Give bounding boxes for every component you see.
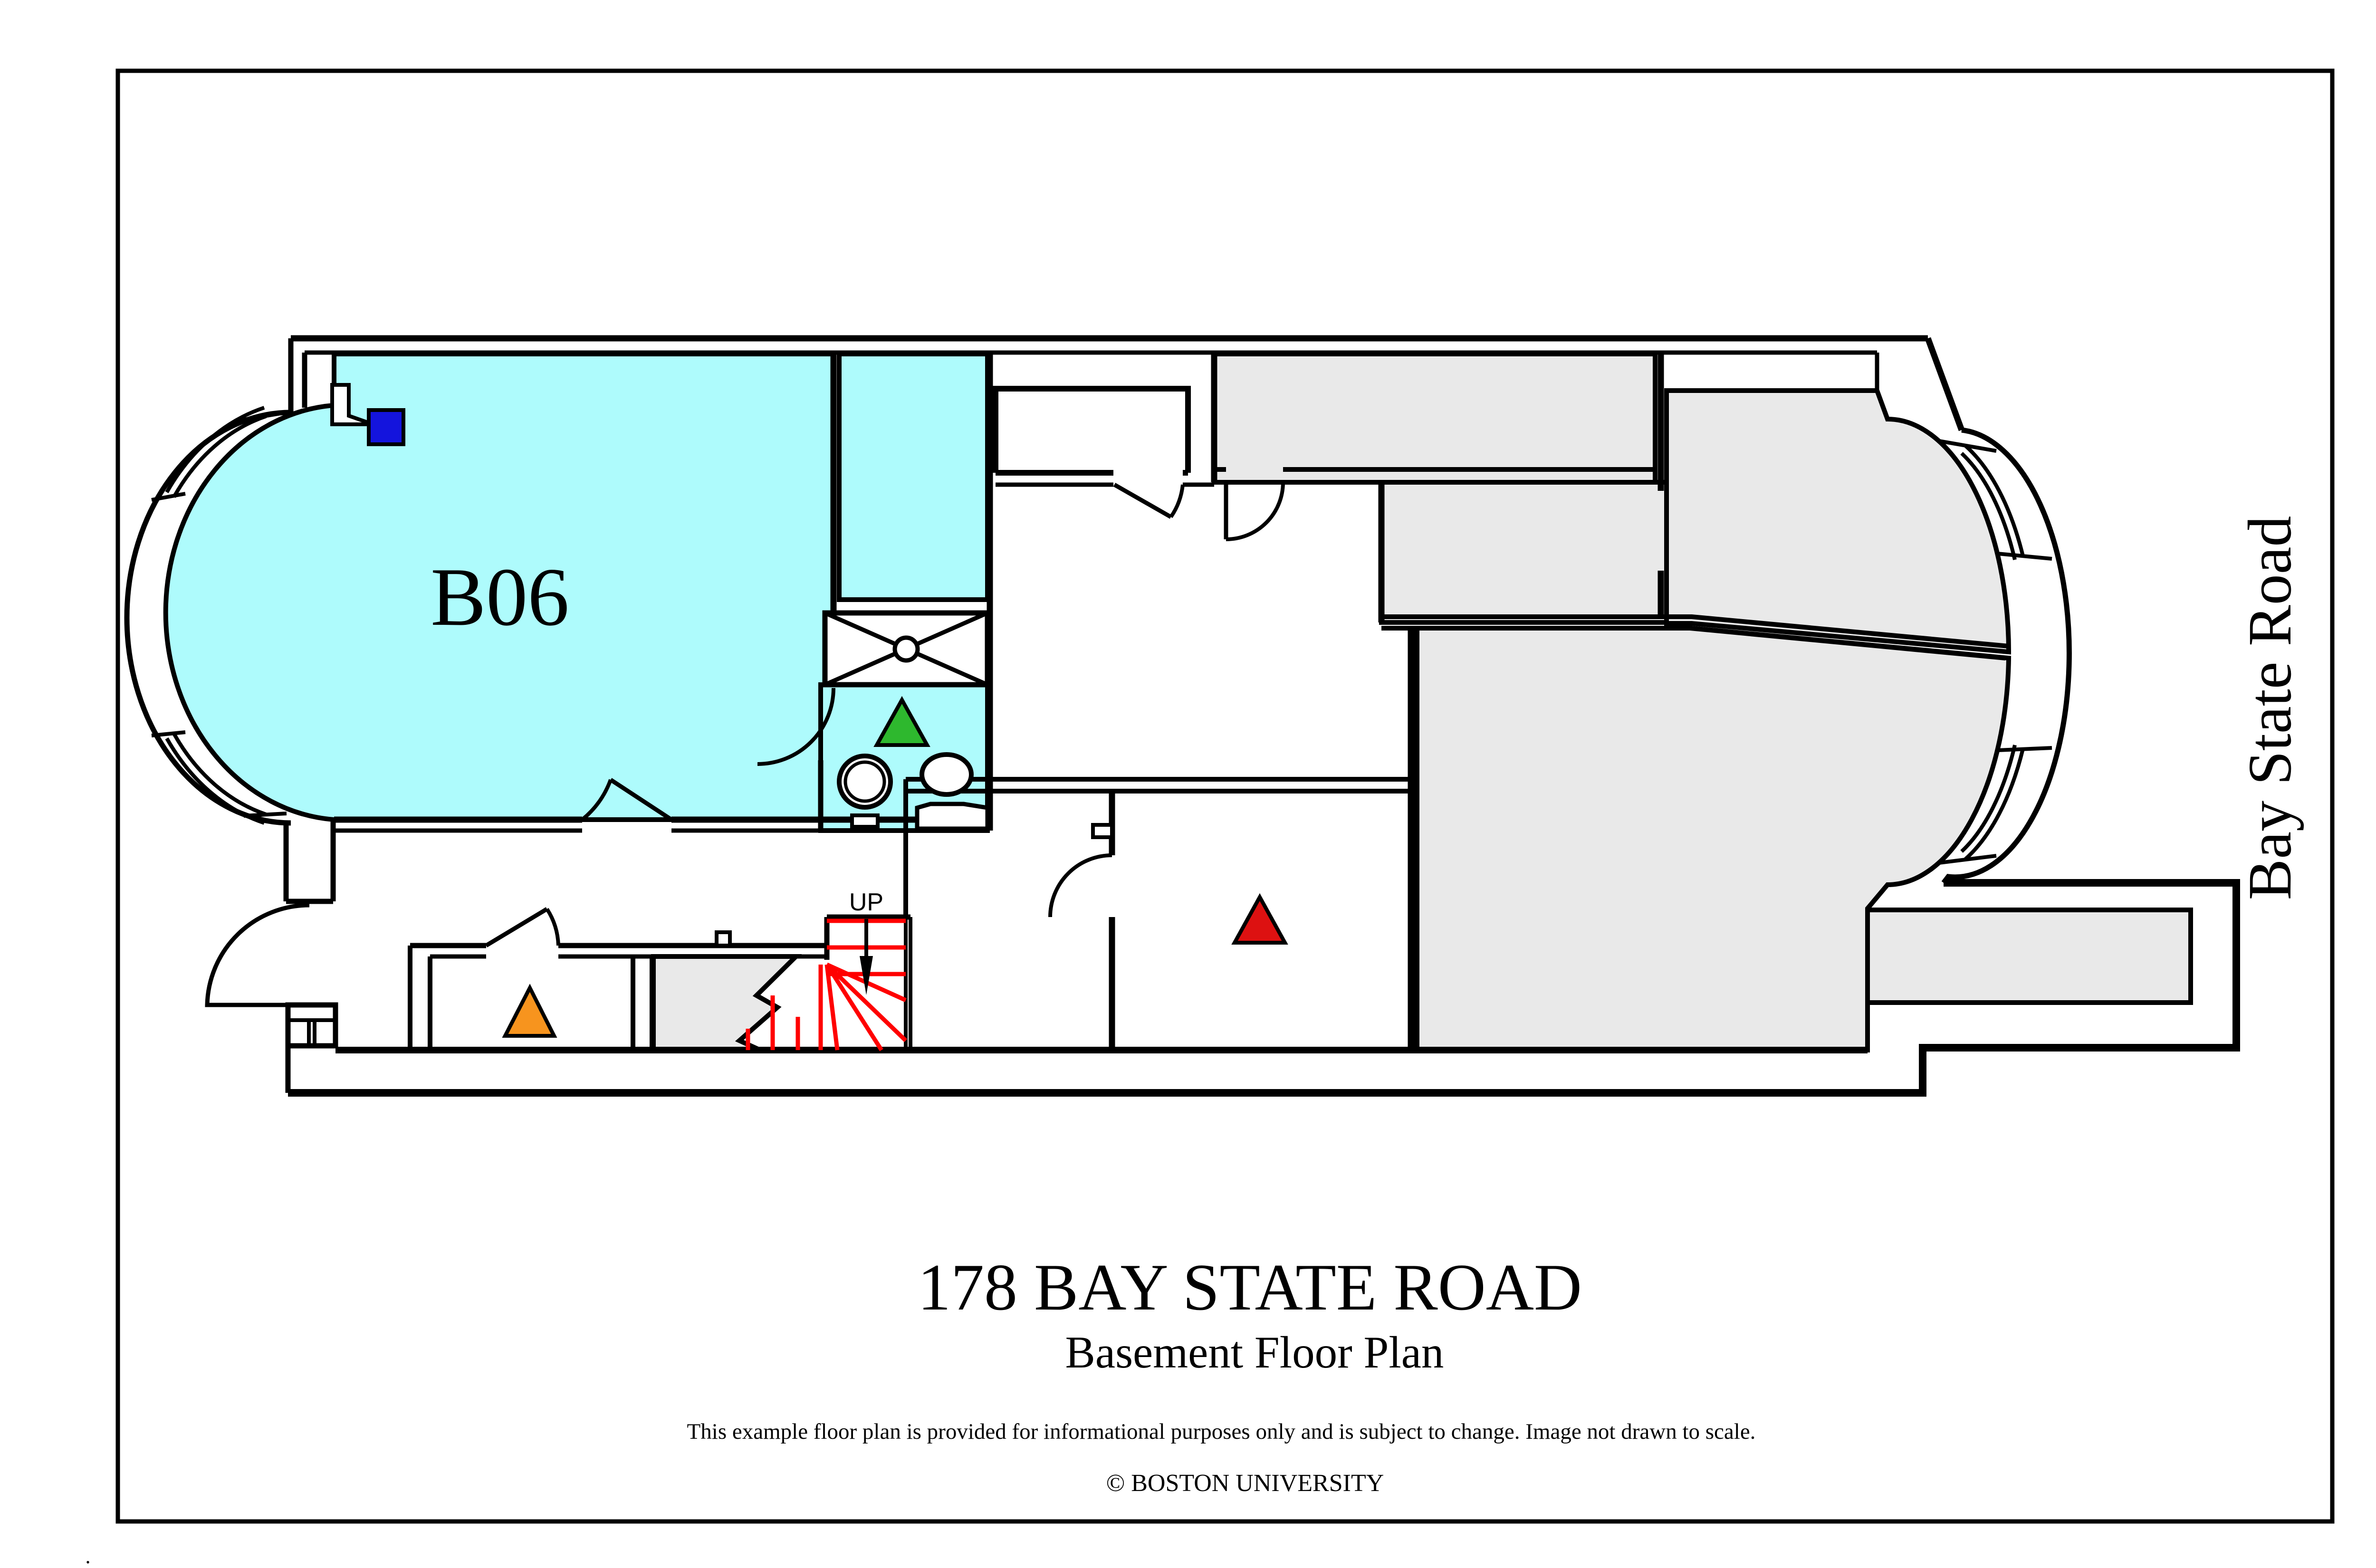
room-a-fill xyxy=(1214,354,1655,482)
plan-copyright: © BOSTON UNIVERSITY xyxy=(1106,1470,1384,1497)
room-a-door-arc xyxy=(1226,482,1283,539)
blue-square-marker xyxy=(369,410,403,444)
entrance-door-arc xyxy=(207,905,309,1005)
wall-top-right-bevel xyxy=(1928,338,1962,430)
red-triangle-marker xyxy=(1235,897,1285,943)
room-b-fill xyxy=(1381,482,1692,622)
shaft-center-circle xyxy=(895,638,918,660)
stairs-up-label: UP xyxy=(849,889,883,916)
stray-mark: . xyxy=(85,1544,90,1568)
orange-triangle-marker xyxy=(505,988,554,1036)
sink-counter-icon xyxy=(917,804,987,829)
shaft-symbol xyxy=(825,613,987,685)
extension-corridor-fill xyxy=(1868,910,2191,1003)
orange-room-door-arc xyxy=(547,909,558,946)
room-r1-walls xyxy=(996,389,1188,473)
floor-plan-canvas: B06 UP Bay State Road 178 BAY STATE ROAD… xyxy=(0,0,2376,1568)
room-strip-fill xyxy=(839,354,987,600)
plan-disclaimer: This example floor plan is provided for … xyxy=(687,1419,1756,1444)
street-label: Bay State Road xyxy=(2236,516,2304,900)
vestibule xyxy=(288,1005,335,1046)
wall-orange-room-left xyxy=(410,946,430,1050)
floor-plan-page: B06 UP Bay State Road 178 BAY STATE ROAD… xyxy=(0,0,2376,1568)
room-b06-label: B06 xyxy=(431,551,569,643)
wall-stair-shaft-top-left xyxy=(827,917,910,960)
wall-orange-room-right xyxy=(633,956,652,1050)
orange-room-door-leaf xyxy=(486,909,547,946)
sink-icon xyxy=(922,755,971,794)
plan-subtitle: Basement Floor Plan xyxy=(1065,1327,1444,1377)
plan-title: 178 BAY STATE ROAD xyxy=(918,1251,1582,1324)
corridor-pilaster xyxy=(717,932,730,946)
r1-door-arc xyxy=(1171,485,1183,517)
red-room-pilaster xyxy=(1093,825,1112,837)
wall-stair-shaft-right xyxy=(906,917,910,1050)
wall-left-upper xyxy=(291,338,305,412)
room-d-fill xyxy=(1667,391,2009,652)
toilet-tank-icon xyxy=(852,815,878,827)
r1-door-leaf xyxy=(1114,485,1171,517)
wall-left-lower xyxy=(286,821,333,901)
red-room-door-arc xyxy=(1050,855,1112,917)
